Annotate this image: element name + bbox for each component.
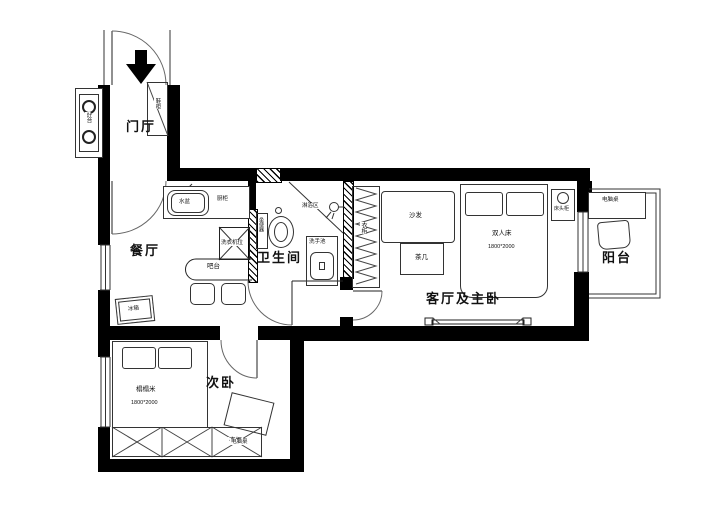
bedside-table-label: 床头柜 [553, 207, 570, 213]
wall-bedroom2-top-right [258, 326, 304, 340]
double-bed-pillow-right [506, 192, 544, 216]
living-door-arc [353, 291, 382, 320]
balcony-desk-label: 电脑桌 [601, 197, 620, 203]
entry-room-label: 门厅 [126, 116, 156, 135]
sofa-label: 沙发 [408, 212, 423, 219]
wall-main-bottom [304, 326, 577, 341]
bedroom2-desk-label: 电脑桌 [230, 439, 249, 445]
tatami-bed-label: 榻榻米 [135, 386, 157, 393]
entry-shoe-cabinet-label: 鞋柜 [154, 98, 160, 109]
wall-bedroom2-right [290, 340, 304, 472]
bedroom2-window [100, 357, 110, 427]
floor-drain-icon [275, 207, 282, 214]
balcony-room-label: 阳台 [602, 247, 632, 266]
double-bed-pillow-left [465, 192, 503, 216]
stove-label: 灶台 [85, 112, 91, 123]
dining-window [100, 245, 110, 290]
balcony-chair [597, 220, 631, 251]
wall-entry-right [167, 85, 180, 181]
toilet-bowl-inner [274, 222, 288, 242]
wash-basin-label: 洗手池 [308, 239, 327, 245]
wall-bedroom2-left-lower [98, 427, 110, 472]
wall-dining-left-upper [98, 168, 110, 245]
tv-stand-lines [433, 318, 523, 324]
bar-stool-right [221, 283, 246, 305]
living-master-room-label: 客厅及主卧 [426, 288, 501, 307]
bedside-lamp-icon [557, 192, 569, 204]
double-bed-size-label: 1800*2000 [487, 244, 516, 250]
sink-label: 水盆 [178, 199, 191, 205]
bar-stool-left [190, 283, 215, 305]
shower-head-icon [330, 203, 339, 212]
kitchen-cabinet-label: 厨柜 [216, 196, 229, 202]
shower-area-label: 淋浴区 [301, 203, 320, 209]
tatami-pillow-left [122, 347, 156, 369]
wall-dining-bottom [98, 326, 220, 340]
stove-burner-bottom-icon [82, 130, 96, 144]
bedroom2-room-label: 次卧 [206, 372, 236, 391]
bathroom-room-label: 卫生间 [257, 247, 302, 266]
wall-bedroom2-bottom [98, 459, 304, 472]
entrance-door-arc [112, 31, 166, 85]
entry-dining-door-arc [112, 181, 166, 234]
tv-foot-left [425, 318, 433, 325]
wall-living-door-stub-bottom [340, 317, 353, 328]
washing-machine-label: 洗衣机位 [220, 240, 244, 246]
tea-table-label: 茶几 [414, 254, 429, 261]
floor-plan: 灶台 水盆 厨柜 洗衣机位 吧台 冰箱 餐厅 鞋柜 门厅 淋浴区 坐便器 洗手池… [0, 0, 716, 521]
wash-basin-faucet-icon [319, 262, 325, 270]
tatami-pillow-right [158, 347, 192, 369]
living-wardrobe-label: 衣柜 [360, 222, 366, 234]
wall-top-left [167, 168, 256, 181]
double-bed-label: 双人床 [491, 230, 513, 237]
bathroom-door-arc [248, 281, 292, 325]
wall-balcony-stub-bottom [574, 272, 589, 341]
bar-label: 吧台 [206, 263, 221, 270]
living-balcony-window [578, 212, 588, 272]
toilet-label: 坐便器 [258, 217, 263, 232]
tv-screen [432, 320, 524, 324]
shower-spray-lines [326, 207, 344, 219]
bathroom-top-window-hatch [256, 168, 282, 183]
wall-bedroom2-left-upper [98, 338, 110, 357]
living-wardrobe [352, 186, 380, 288]
tv-foot-right [523, 318, 531, 325]
dining-room-label: 餐厅 [130, 240, 160, 259]
tatami-bed-size-label: 1800*2000 [130, 400, 159, 406]
entrance-arrow-icon [126, 50, 156, 84]
wall-top-right [280, 168, 590, 181]
